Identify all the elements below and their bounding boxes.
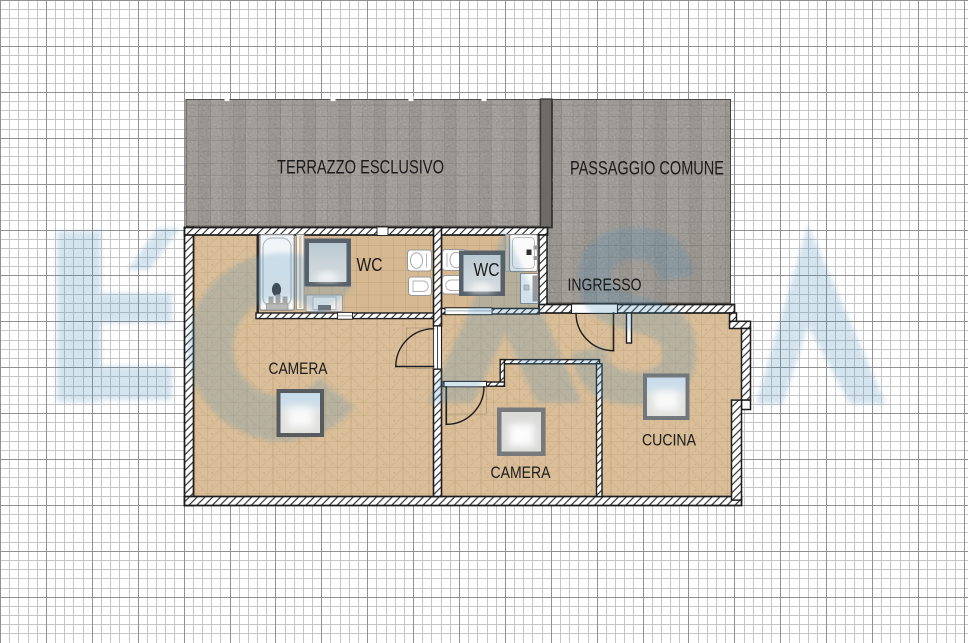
svg-text:PASSAGGIO COMUNE: PASSAGGIO COMUNE (570, 158, 724, 180)
svg-text:WC: WC (474, 260, 500, 280)
svg-text:WC: WC (357, 255, 383, 275)
svg-text:TERRAZZO ESCLUSIVO: TERRAZZO ESCLUSIVO (277, 157, 444, 179)
svg-text:CAMERA: CAMERA (269, 360, 328, 378)
svg-text:CUCINA: CUCINA (642, 432, 696, 450)
svg-text:CAMERA: CAMERA (491, 464, 551, 482)
svg-text:INGRESSO: INGRESSO (568, 275, 642, 295)
